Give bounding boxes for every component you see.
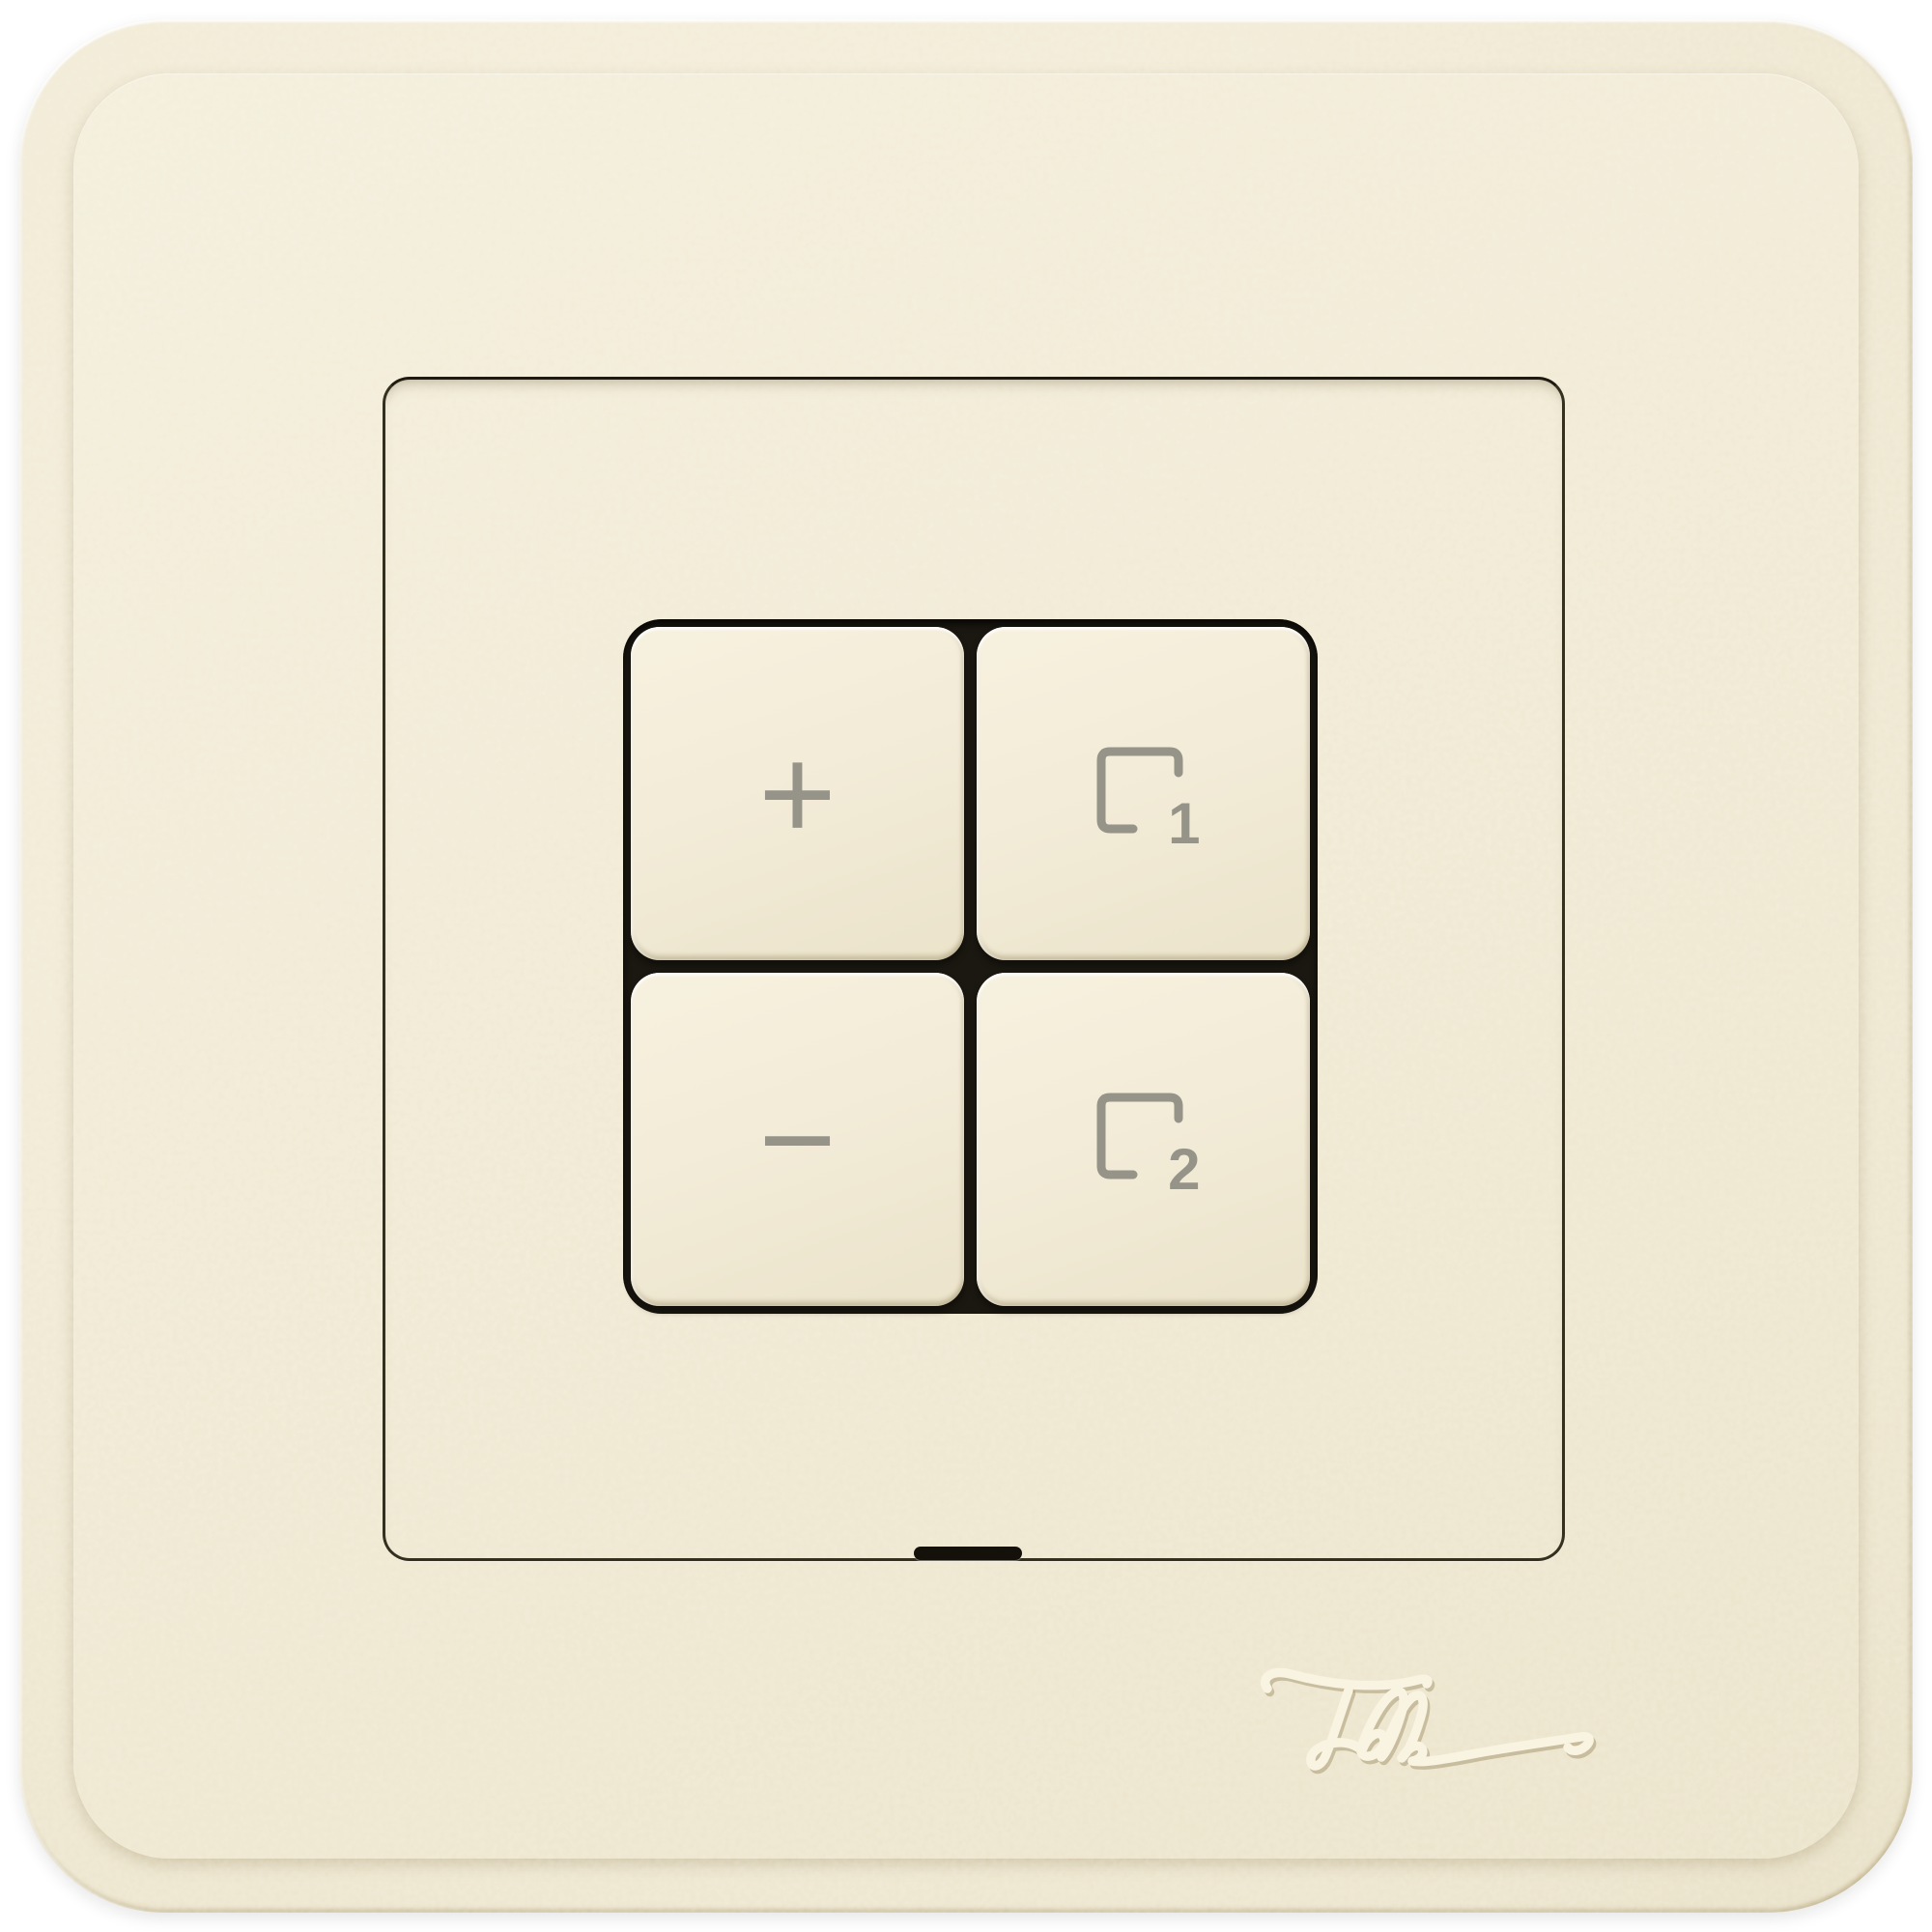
scene-2-button[interactable]: 2 (977, 973, 1310, 1306)
wall-switch-product-photo: + 1 − 2 Feller (0, 0, 1932, 1932)
scene-2-number: 2 (1168, 1141, 1200, 1199)
dim-up-button[interactable]: + (631, 627, 964, 960)
plus-icon: + (758, 727, 837, 861)
scene-1-button[interactable]: 1 (977, 627, 1310, 960)
scene-1-number: 1 (1168, 795, 1200, 853)
scene-1-icon: 1 (1093, 743, 1195, 845)
dim-down-button[interactable]: − (631, 973, 964, 1306)
brand-name-text: Feller (0, 0, 1, 1)
release-notch (914, 1547, 1022, 1560)
scene-2-icon: 2 (1093, 1089, 1195, 1191)
minus-icon: − (758, 1073, 837, 1207)
